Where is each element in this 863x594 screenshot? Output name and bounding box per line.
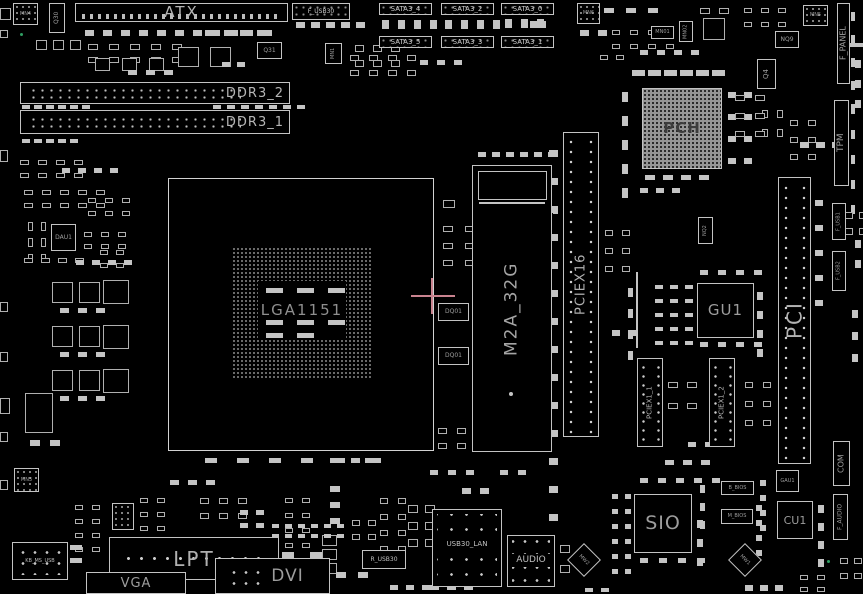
gau1-chip: GAU1 (776, 470, 799, 492)
passive-component (341, 22, 350, 28)
passive-component (625, 494, 631, 499)
passive-component (103, 30, 112, 36)
sata3-4-label: SATA3_4 (380, 4, 431, 14)
passive-component (757, 330, 763, 338)
passive-component (445, 20, 452, 29)
passive-component (670, 327, 678, 331)
passive-component (406, 585, 414, 590)
mn3-label: MN3 (15, 469, 38, 491)
sata3-4-connector: SATA3_4 (379, 3, 432, 15)
passive-component (560, 545, 570, 553)
passive-component (414, 20, 421, 29)
passive-component (612, 539, 618, 544)
passive-component (744, 158, 752, 164)
passive-component (70, 545, 82, 550)
pciex1-1-label: PCIEX1_1 (638, 359, 662, 446)
passive-component (622, 164, 628, 174)
passive-component (580, 30, 589, 36)
passive-component (352, 520, 360, 526)
q30-component: Q30 (49, 3, 65, 33)
passive-component (600, 55, 608, 60)
passive-component (103, 369, 129, 393)
passive-component (492, 152, 500, 157)
passive-component (462, 488, 471, 494)
pciex1-2-label: PCIEX1_2 (710, 359, 734, 446)
passive-component (140, 512, 148, 517)
passive-component (38, 173, 47, 178)
passive-component (60, 308, 69, 313)
passive-component (92, 533, 100, 538)
passive-component (691, 50, 699, 55)
passive-component (735, 131, 745, 137)
passive-component (105, 211, 113, 216)
passive-component (124, 260, 132, 265)
tpm-label: TPM (835, 101, 848, 185)
passive-component (685, 341, 693, 345)
passive-component (681, 175, 691, 180)
passive-component (760, 495, 766, 501)
passive-component (283, 105, 291, 109)
passive-component (22, 105, 30, 109)
sio-chip: SIO (634, 494, 692, 553)
passive-component (668, 382, 678, 388)
passive-component (78, 190, 87, 195)
passive-component (213, 105, 221, 109)
q31-component: Q31 (257, 42, 282, 59)
passive-component (700, 521, 705, 529)
passive-component (285, 534, 292, 538)
passive-component (368, 534, 376, 540)
passive-component (744, 136, 752, 142)
passive-component (622, 116, 628, 126)
passive-component (694, 478, 702, 483)
passive-component (622, 266, 630, 272)
q4-label: Q4 (758, 60, 775, 88)
passive-component (605, 248, 613, 254)
passive-component (75, 505, 83, 510)
passive-component (256, 523, 264, 528)
passive-component (851, 130, 855, 139)
usb30-lan-connector: USB30_LAN (432, 509, 502, 587)
passive-component (285, 543, 293, 548)
gau1-label: GAU1 (777, 471, 798, 491)
m2-slot: M2A_32G (472, 165, 552, 452)
passive-component (60, 396, 69, 401)
passive-component (685, 299, 693, 303)
passive-component (330, 486, 340, 492)
b-bios-label: B_BIOS (722, 482, 753, 494)
passive-component (311, 22, 320, 28)
passive-component (815, 275, 823, 281)
passive-component (85, 30, 94, 36)
passive-component (520, 152, 528, 157)
passive-component (60, 203, 69, 208)
passive-component (518, 470, 526, 475)
passive-component (744, 8, 752, 13)
passive-component (157, 526, 165, 531)
passive-component (56, 173, 65, 178)
passive-component (493, 20, 500, 29)
passive-component (506, 152, 514, 157)
passive-component (70, 105, 78, 109)
passive-component (100, 250, 108, 255)
passive-component (701, 460, 710, 465)
passive-component (852, 332, 858, 340)
passive-component (42, 203, 51, 208)
passive-component (79, 326, 100, 347)
passive-component (443, 226, 453, 232)
passive-component (612, 44, 620, 49)
sata3-0-label: SATA3_0 (502, 4, 553, 14)
passive-component (157, 30, 166, 36)
passive-component (640, 188, 648, 193)
pciex16-label: PCIEX16 (564, 133, 598, 436)
nq2-component: NQ2 (698, 217, 713, 244)
sata3-3-connector: SATA3_3 (441, 36, 494, 48)
passive-component (205, 30, 215, 36)
passive-component (845, 228, 853, 235)
passive-component (84, 232, 92, 237)
passive-component (407, 70, 416, 76)
passive-component (601, 588, 609, 592)
passive-component (685, 285, 693, 289)
passive-component (697, 558, 703, 566)
passive-component (76, 260, 84, 265)
passive-component (818, 559, 824, 567)
passive-component (140, 526, 148, 531)
mn1-label: MN1 (326, 44, 341, 63)
passive-component (41, 258, 50, 263)
atx-power-connector: ATX (75, 3, 288, 22)
passive-component (505, 19, 512, 28)
passive-component (164, 70, 173, 75)
passive-component (121, 30, 130, 36)
passive-component (430, 20, 437, 29)
passive-component (612, 569, 618, 574)
passive-component (109, 44, 119, 50)
passive-component (761, 8, 769, 13)
passive-component (222, 62, 230, 67)
passive-component (612, 494, 618, 499)
passive-component (760, 480, 766, 486)
nq2-label: NQ2 (699, 218, 712, 243)
passive-component (632, 70, 645, 76)
mn01-label: MN01 (652, 27, 673, 38)
passive-component (658, 478, 666, 483)
passive-component (84, 244, 92, 249)
passive-component (118, 244, 126, 249)
passive-component (790, 137, 798, 143)
passive-component (302, 513, 310, 518)
passive-component (687, 382, 697, 388)
passive-component (648, 44, 656, 49)
passive-component (285, 498, 293, 503)
pci-label: PCI (779, 178, 810, 463)
cu1-label: CU1 (778, 502, 812, 538)
passive-component (815, 300, 823, 306)
passive-component (170, 480, 179, 485)
mw2-label: MW2 (568, 544, 599, 575)
m2-label: M2A_32G (473, 166, 551, 451)
passive-component (52, 326, 73, 347)
passive-component (56, 160, 65, 165)
passive-component (816, 142, 825, 148)
passive-component (94, 168, 102, 173)
passive-component (728, 158, 736, 164)
passive-component (640, 558, 648, 563)
passive-component (92, 519, 100, 524)
passive-component (645, 175, 655, 180)
passive-component (761, 22, 769, 27)
passive-component (420, 60, 428, 65)
passive-component (851, 155, 855, 164)
passive-component (712, 478, 720, 483)
passive-component (840, 573, 848, 579)
passive-component (700, 485, 705, 493)
passive-component (28, 222, 33, 231)
passive-component (398, 530, 406, 536)
passive-component (0, 432, 8, 442)
passive-component (122, 198, 130, 203)
passive-component (388, 70, 397, 76)
mn3-chip: MN3 (14, 468, 39, 492)
passive-component (240, 510, 248, 515)
com-header: COM (833, 441, 850, 486)
passive-component (778, 22, 786, 27)
passive-component (700, 342, 708, 347)
passive-component (52, 282, 73, 303)
passive-component (851, 35, 855, 44)
passive-component (636, 272, 638, 348)
passive-component (604, 8, 614, 13)
passive-component (130, 44, 140, 50)
passive-component (560, 565, 570, 573)
passive-component (352, 534, 360, 540)
passive-component (24, 190, 33, 195)
passive-component (655, 285, 663, 289)
sata3-2-connector: SATA3_2 (441, 3, 494, 15)
passive-component (800, 142, 809, 148)
passive-component (330, 458, 339, 463)
passive-component (355, 45, 364, 52)
passive-component (285, 528, 293, 533)
passive-component (605, 266, 613, 272)
passive-component (0, 352, 8, 362)
passive-component (373, 60, 382, 67)
passive-component (700, 270, 708, 275)
passive-component (815, 225, 823, 231)
passive-component (92, 547, 100, 552)
passive-component (448, 470, 456, 475)
passive-component (700, 503, 705, 511)
passive-component (178, 47, 199, 67)
passive-component (188, 480, 197, 485)
dq01-b-label: DQ01 (439, 348, 468, 364)
passive-component (368, 520, 376, 526)
passive-component (790, 154, 798, 160)
ddr3-2-slot: DDR3_2 (20, 82, 290, 104)
passive-component (625, 569, 631, 574)
passive-component (311, 524, 318, 528)
passive-component (549, 458, 558, 465)
passive-component (240, 30, 249, 36)
passive-component (656, 188, 664, 193)
dvi-connector: DVI (215, 558, 330, 594)
passive-component (41, 222, 46, 231)
passive-component (355, 60, 364, 67)
passive-component (852, 310, 858, 318)
passive-component (585, 588, 593, 592)
passive-component (648, 70, 661, 76)
passive-component (612, 509, 618, 514)
passive-component (754, 342, 762, 347)
sata3-5-connector: SATA3_5 (379, 36, 432, 48)
led-indicator (827, 560, 830, 563)
passive-component (109, 57, 119, 63)
passive-component (612, 554, 618, 559)
tpm-header: TPM (834, 100, 849, 186)
passive-component (75, 519, 83, 524)
passive-component (356, 22, 365, 28)
passive-component (272, 524, 279, 528)
pci-slot: PCI (778, 177, 811, 464)
passive-component (655, 313, 663, 317)
passive-component (157, 512, 165, 517)
passive-component (754, 270, 762, 275)
dq01-chip-a: DQ01 (438, 303, 469, 321)
passive-component (808, 137, 816, 143)
passive-component (82, 105, 90, 109)
passive-component (718, 342, 726, 347)
passive-component (757, 349, 763, 357)
pciex1-2-slot: PCIEX1_2 (709, 358, 735, 447)
pch-chip: PCH (642, 88, 722, 169)
passive-component (685, 313, 693, 317)
passive-component (257, 30, 266, 36)
ddr3-1-slot: DDR3_1 (20, 110, 290, 134)
atx-label: ATX (76, 4, 287, 21)
f-audio-label: F_AUDIO (834, 495, 847, 539)
q4-component: Q4 (757, 59, 776, 89)
passive-component (657, 50, 665, 55)
passive-component (466, 470, 474, 475)
passive-component (480, 488, 489, 494)
crosshair-vertical (431, 278, 433, 314)
passive-component (755, 95, 765, 101)
passive-component (443, 200, 455, 208)
passive-component (302, 498, 310, 503)
passive-component (500, 470, 508, 475)
passive-component (70, 558, 82, 563)
passive-component (103, 325, 129, 349)
f-panel-header: F_PANEL (837, 3, 850, 84)
passive-component (58, 105, 66, 109)
passive-component (139, 30, 148, 36)
passive-component (110, 168, 118, 173)
passive-component (655, 327, 663, 331)
passive-component (391, 60, 400, 67)
passive-component (674, 50, 682, 55)
passive-component (622, 230, 630, 236)
passive-component (665, 460, 674, 465)
passive-component (840, 558, 848, 564)
passive-component (30, 440, 40, 446)
passive-component (330, 502, 340, 508)
passive-component (408, 522, 418, 530)
passive-component (760, 585, 768, 591)
passive-component (454, 60, 462, 65)
f-usb1-label: F_USB1 (833, 204, 845, 239)
passive-component (285, 513, 293, 518)
passive-component (0, 302, 8, 312)
passive-component (78, 396, 87, 401)
ddr3-2-label: DDR3_2 (21, 83, 289, 103)
passive-component (461, 20, 468, 29)
passive-component (255, 105, 263, 109)
passive-component (683, 460, 692, 465)
passive-component (672, 188, 680, 193)
passive-component (70, 40, 81, 50)
passive-component (78, 203, 87, 208)
sata3-3-label: SATA3_3 (442, 37, 493, 47)
f-usb30-header: F_USB30 (292, 3, 350, 20)
passive-component (205, 458, 217, 463)
mn5-label: MN5 (804, 6, 827, 25)
passive-component (398, 514, 406, 520)
passive-component (324, 534, 331, 538)
passive-component (298, 524, 305, 528)
passive-component (755, 131, 765, 137)
dvi-label: DVI (216, 559, 329, 593)
passive-component (744, 22, 752, 27)
passive-component (92, 505, 100, 510)
passive-component (800, 575, 808, 580)
passive-component (20, 160, 29, 165)
passive-component (122, 211, 130, 216)
crosshair-horizontal (411, 295, 455, 297)
passive-component (605, 230, 613, 236)
passive-component (719, 8, 729, 14)
passive-component (630, 44, 638, 49)
passive-component (146, 70, 155, 75)
passive-component (369, 70, 378, 76)
m-bios-label: M_BIOS (722, 510, 752, 523)
passive-component (696, 70, 709, 76)
passive-component (756, 535, 762, 541)
passive-component (800, 587, 808, 592)
passive-component (36, 40, 47, 50)
audio-label: AUDIO (508, 554, 554, 567)
passive-component (659, 558, 667, 563)
dq01-chip-b: DQ01 (438, 347, 469, 365)
f-usb1-header: F_USB1 (832, 203, 846, 240)
passive-component (88, 211, 96, 216)
passive-component (530, 21, 546, 28)
passive-component (285, 524, 292, 528)
passive-component (443, 260, 453, 266)
passive-component (78, 352, 87, 357)
mn01-chip: MN01 (651, 26, 674, 39)
passive-component (88, 44, 98, 50)
mw2-crystal: MW2 (567, 543, 601, 577)
passive-component (430, 470, 438, 475)
f-usb30-label: F_USB30 (293, 4, 349, 19)
passive-component (852, 354, 858, 362)
mn4-label: MN4 (14, 4, 37, 24)
passive-component (42, 190, 51, 195)
passive-component (626, 8, 636, 13)
passive-component (616, 55, 624, 60)
